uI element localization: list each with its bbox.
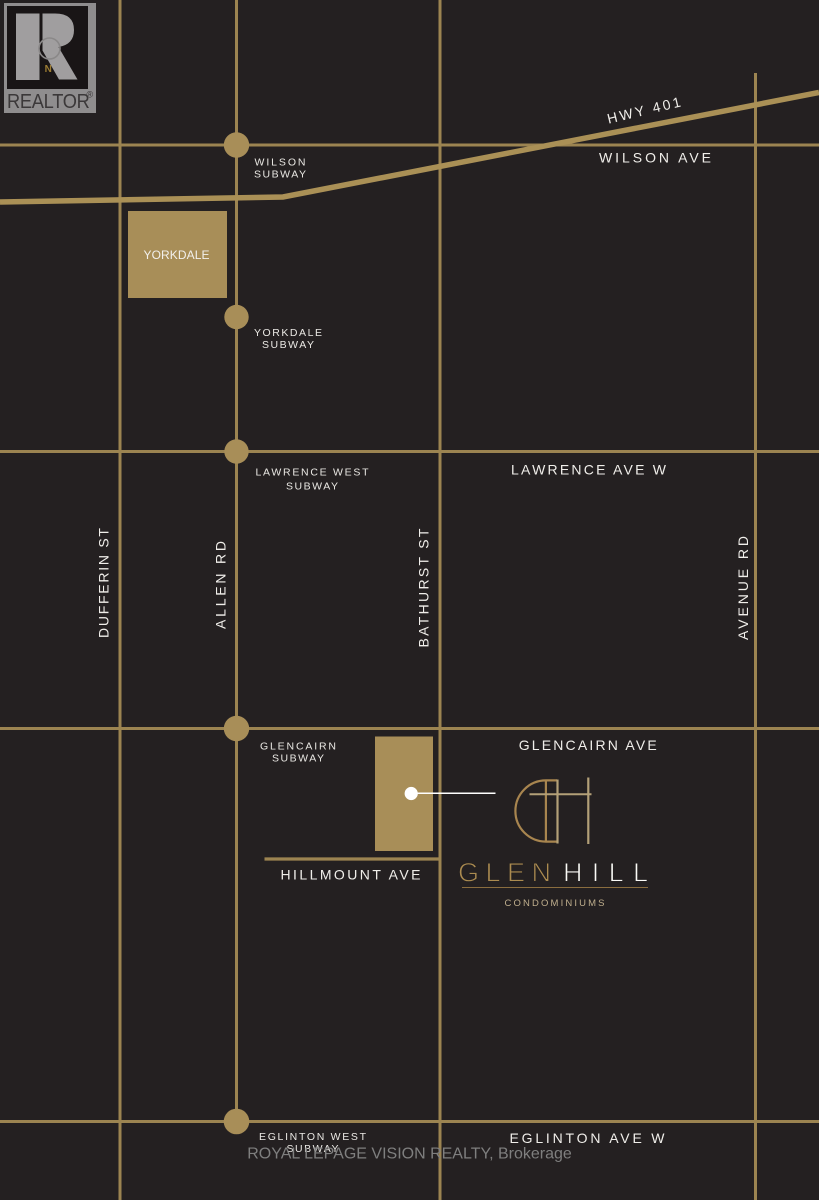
svg-text:EGLINTON WEST: EGLINTON WEST xyxy=(259,1131,367,1143)
svg-text:®: ® xyxy=(87,90,94,100)
svg-text:BATHURST ST: BATHURST ST xyxy=(416,528,432,647)
svg-text:HILLMOUNT AVE: HILLMOUNT AVE xyxy=(281,867,421,883)
svg-text:GLENCAIRN: GLENCAIRN xyxy=(260,741,336,753)
svg-text:YORKDALE: YORKDALE xyxy=(254,327,322,339)
svg-text:DUFFERIN ST: DUFFERIN ST xyxy=(96,528,112,638)
svg-text:ROYAL LEPAGE VISION REALTY, Br: ROYAL LEPAGE VISION REALTY, Brokerage xyxy=(247,1146,572,1163)
svg-text:SUBWAY: SUBWAY xyxy=(286,481,338,493)
svg-text:N: N xyxy=(45,64,52,75)
svg-text:WILSON: WILSON xyxy=(255,157,306,169)
svg-text:SUBWAY: SUBWAY xyxy=(254,169,306,181)
svg-text:CONDOMINIUMS: CONDOMINIUMS xyxy=(505,898,605,909)
svg-text:LAWRENCE AVE W: LAWRENCE AVE W xyxy=(511,462,667,478)
svg-text:REALTOR: REALTOR xyxy=(7,90,90,113)
svg-text:YORKDALE: YORKDALE xyxy=(144,248,210,262)
svg-text:AVENUE RD: AVENUE RD xyxy=(735,536,751,640)
svg-text:WILSON AVE: WILSON AVE xyxy=(599,150,711,166)
svg-text:SUBWAY: SUBWAY xyxy=(262,339,314,351)
svg-text:SUBWAY: SUBWAY xyxy=(272,753,324,765)
